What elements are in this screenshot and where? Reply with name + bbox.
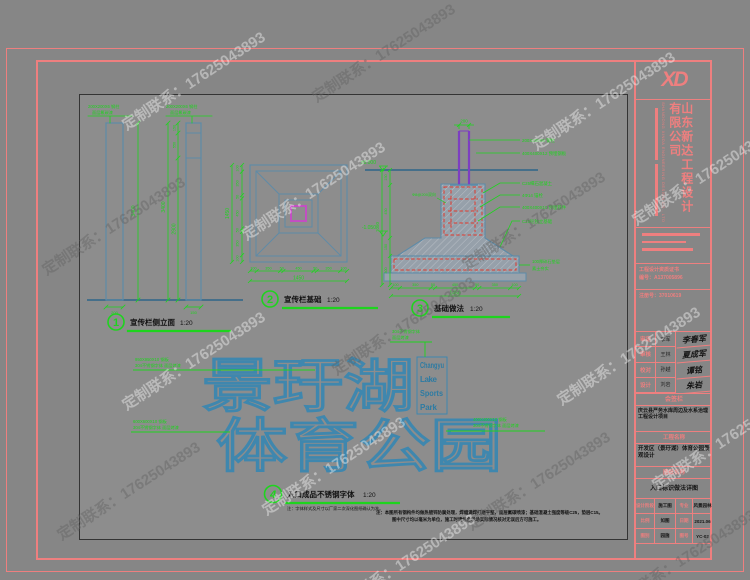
sign-name: 孙越 bbox=[656, 363, 676, 378]
type-label: 图别 bbox=[636, 529, 655, 544]
certificate-box: 工程设计资质证书 编号：A137005896 bbox=[636, 264, 712, 290]
dim-2900: 2900 bbox=[172, 223, 178, 234]
dim-550: 550 bbox=[173, 142, 177, 148]
detail-4-note: 注：字体样式及尺寸以厂家二次深化图纸确认为准。 bbox=[287, 505, 383, 512]
date-value: 2021.06 bbox=[693, 514, 712, 529]
sign-signature: 朱岩 bbox=[675, 376, 712, 394]
project-line: 庆云县严务水库周边及水系治理工程设计项目 bbox=[636, 406, 712, 432]
leader-label: 200X200X6 钢柱 bbox=[522, 137, 556, 144]
type-value: 园施 bbox=[655, 529, 676, 544]
dim-200: 200 bbox=[460, 119, 468, 124]
dim: 350 bbox=[236, 240, 240, 246]
dim: 50 bbox=[313, 267, 317, 271]
general-notes: 注：本图所有钢构件均做热镀锌防腐处理，焊缝满焊打磨平整，面层氟碳喷漆；基础混凝土… bbox=[376, 509, 603, 523]
sign-role: 校对 bbox=[636, 363, 656, 378]
detail-4-number: 4 bbox=[269, 489, 276, 501]
dim: 100 bbox=[340, 267, 346, 271]
detail-3-scale: 1:20 bbox=[470, 306, 483, 313]
sign-name: 刘岩 bbox=[656, 378, 676, 393]
detail-2-title: 宣传栏基础 bbox=[284, 294, 322, 304]
artwork-en-line: Lake bbox=[420, 375, 438, 384]
detail-1-scale: 1:20 bbox=[180, 320, 193, 327]
drawing-name-header: 图纸名称 bbox=[636, 467, 712, 479]
dim: 300 bbox=[384, 267, 388, 273]
artwork-en-line: Park bbox=[420, 403, 438, 412]
dim: 450 bbox=[452, 283, 458, 287]
leader-label: 400X400X10 预埋铁件 bbox=[522, 204, 567, 211]
artwork-chinese-row2: 体育公园 bbox=[216, 414, 502, 479]
dim-3400: 3400 bbox=[131, 205, 137, 216]
detail-4-lettering: 景玗湖 体育公园 Changyu Lake Sports Park 950X95… bbox=[131, 328, 545, 512]
company-decor-bars bbox=[655, 102, 658, 227]
sheetno-label: 图号 bbox=[676, 529, 693, 544]
dim-total: 1050 bbox=[375, 221, 380, 232]
dim: 50 bbox=[431, 283, 435, 287]
detail-4-scale: 1:20 bbox=[363, 492, 376, 499]
annotation: 304不锈钢字体 bbox=[392, 328, 421, 335]
dim-3400: 3400 bbox=[161, 201, 167, 212]
detail-3-title: 基础做法 bbox=[433, 303, 464, 313]
base-label: 100厚碎石垫层 bbox=[532, 258, 560, 265]
dim-total: 1450 bbox=[449, 291, 460, 297]
cad-drawing: 200X200X6 钢柱 面层氟碳漆 200X200X6 钢柱 面层氟碳漆 34… bbox=[80, 95, 627, 539]
dim-total: 1450 bbox=[225, 208, 231, 219]
artwork-en-line: Sports bbox=[420, 389, 443, 398]
sheet-info-table: 设计阶段 施工图 专业 风景园林 比例 如图 日期 2021.06 图别 园施 … bbox=[636, 499, 712, 544]
annotation: 304不锈钢字体 面层烤漆 bbox=[473, 422, 519, 429]
stage-label: 设计阶段 bbox=[636, 499, 655, 514]
dim: 50 bbox=[475, 283, 479, 287]
detail-3-number: 3 bbox=[417, 303, 423, 315]
dim: 350 bbox=[492, 283, 498, 287]
post2-finish-label: 面层氟碳漆 bbox=[170, 109, 191, 116]
signature-table: 审定 李军 李春军 审核 王林 夏成军 校对 孙越 谭铭 设计 刘岩 朱岩 bbox=[636, 332, 712, 394]
artwork-en-line: Changyu bbox=[420, 361, 444, 370]
dim: 150 bbox=[384, 174, 388, 180]
post2-material-label: 200X200X6 钢柱 bbox=[166, 103, 198, 110]
date-label: 日期 bbox=[676, 514, 693, 529]
sheetno-value: YC-02 bbox=[693, 529, 712, 544]
leader-label: C25细石混凝土 bbox=[522, 180, 553, 187]
rebar-note: Φ8@200双向 bbox=[412, 191, 436, 197]
leader-label: 4Φ14 锚栓 bbox=[522, 192, 543, 199]
detail-1-number: 1 bbox=[113, 317, 119, 329]
annotation: 304不锈钢字体 面层烤漆 bbox=[135, 362, 181, 369]
dim: 350 bbox=[412, 283, 418, 287]
company-name-en: SHANDONG XINDA ENGINEERING DESIGN CO., L… bbox=[661, 102, 666, 227]
detail-3-foundation-section: 200 ±0.000 -1.050 Φ8@200双向 200X200X6 钢柱 bbox=[361, 119, 567, 318]
huiqian-header: 会签栏 bbox=[636, 394, 712, 406]
scale-value: 如图 bbox=[655, 514, 676, 529]
dim-total: 1450 bbox=[293, 276, 304, 282]
dim: 100 bbox=[511, 283, 517, 287]
dim: 50 bbox=[236, 228, 240, 232]
post1-material-label: 200X200X6 钢柱 bbox=[88, 103, 120, 110]
scale-label: 比例 bbox=[636, 514, 655, 529]
major-label: 专业 bbox=[676, 499, 693, 514]
sign-role: 审核 bbox=[636, 347, 656, 362]
certificate-title: 工程设计资质证书 bbox=[639, 266, 709, 274]
drawing-area: 200X200X6 钢柱 面层氟碳漆 200X200X6 钢柱 面层氟碳漆 34… bbox=[79, 94, 628, 540]
company-name-cn: 山东新达工程设计有限公司 bbox=[669, 102, 693, 227]
major-value: 风景园林 bbox=[693, 499, 712, 514]
dim: 450 bbox=[295, 267, 301, 271]
dim: 50 bbox=[280, 267, 284, 271]
stage-value: 施工图 bbox=[655, 499, 676, 514]
dim-150: 150 bbox=[190, 310, 197, 315]
certificate-number: 编号：A137005896 bbox=[639, 274, 709, 282]
leader-label: 400X400X12 预埋钢板 bbox=[522, 150, 567, 157]
note-line-2: 图中尺寸均以毫米为单位，施工时请结合现场实际情况核对无误后方可施工。 bbox=[392, 516, 541, 523]
dim: 100 bbox=[392, 283, 398, 287]
title-block: XD 山东新达工程设计有限公司 SHANDONG XINDA ENGINEERI… bbox=[634, 60, 712, 560]
sign-role: 审定 bbox=[636, 332, 656, 347]
note-line-1: 注：本图所有钢构件均做热镀锌防腐处理，焊缝满焊打磨平整，面层氟碳喷漆；基础混凝土… bbox=[376, 509, 603, 516]
company-contact-lines bbox=[636, 228, 712, 264]
sign-name: 李军 bbox=[656, 332, 676, 347]
detail-2-number: 2 bbox=[267, 294, 273, 306]
dim: 50 bbox=[236, 195, 240, 199]
company-logo: XD bbox=[636, 60, 712, 100]
sign-role: 设计 bbox=[636, 378, 656, 393]
dim: 450 bbox=[236, 210, 240, 216]
sign-name: 王林 bbox=[656, 347, 676, 362]
cad-sheet-page: XD 山东新达工程设计有限公司 SHANDONG XINDA ENGINEERI… bbox=[0, 0, 750, 580]
detail-4-title: 入口成品不锈钢字体 bbox=[286, 489, 355, 499]
dim: 350 bbox=[236, 180, 240, 186]
company-name-block: 山东新达工程设计有限公司 SHANDONG XINDA ENGINEERING … bbox=[636, 100, 712, 228]
dim: 100 bbox=[250, 267, 256, 271]
anchor-box bbox=[291, 206, 306, 221]
detail-1-post-elevation: 200X200X6 钢柱 面层氟碳漆 200X200X6 钢柱 面层氟碳漆 34… bbox=[88, 103, 242, 331]
annotation: 面层烤漆 bbox=[392, 334, 409, 341]
dim: 350 bbox=[265, 267, 271, 271]
registration-box: 注册号：37010619 bbox=[636, 290, 712, 332]
artwork-chinese-row1: 景玗湖 bbox=[202, 354, 414, 419]
dim: 350 bbox=[325, 267, 331, 271]
dim: 100 bbox=[236, 165, 240, 171]
registration-number: 注册号：37010619 bbox=[639, 292, 709, 299]
detail-1-title: 宣传栏侧立面 bbox=[130, 317, 175, 327]
dim-150: 150 bbox=[173, 125, 177, 131]
detail-2-scale: 1:20 bbox=[327, 297, 340, 304]
dim: 450 bbox=[384, 208, 388, 214]
annotation: 304不锈钢字体 面层烤漆 bbox=[133, 424, 179, 431]
annotation: 950X950X10 钢板 bbox=[135, 356, 170, 363]
dim: 150 bbox=[384, 244, 388, 250]
post1-finish-label: 面层氟碳漆 bbox=[92, 109, 113, 116]
leader-label: C25砼独立基础 bbox=[522, 218, 553, 225]
dim: 100 bbox=[236, 255, 240, 261]
detail-2-foundation-plan: 100 350 50 450 50 350 100 1450 100 350 5… bbox=[225, 163, 378, 308]
project-name-header: 工程名称 bbox=[636, 432, 712, 444]
annotation: 600X600X10 钢板 bbox=[133, 418, 168, 425]
drawing-name: 入口标识做法详图 bbox=[636, 479, 712, 499]
base-label: 素土夯实 bbox=[532, 265, 549, 272]
annotation: 400X400X10 钢板 bbox=[473, 416, 508, 423]
project-name: 开发区（景玗湖）体育公园景观设计 bbox=[636, 444, 712, 467]
level-zero: ±0.000 bbox=[361, 160, 376, 166]
